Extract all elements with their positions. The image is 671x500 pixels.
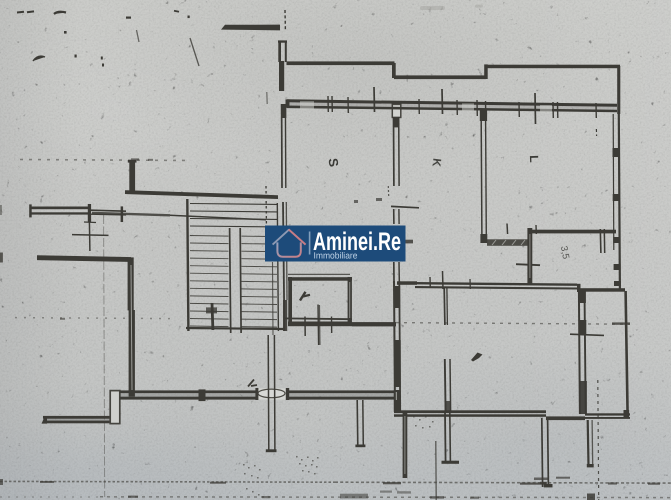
svg-text:Immobiliare: Immobiliare [314, 250, 358, 260]
svg-text:L: L [527, 155, 541, 163]
svg-text:3,5: 3,5 [558, 245, 571, 260]
